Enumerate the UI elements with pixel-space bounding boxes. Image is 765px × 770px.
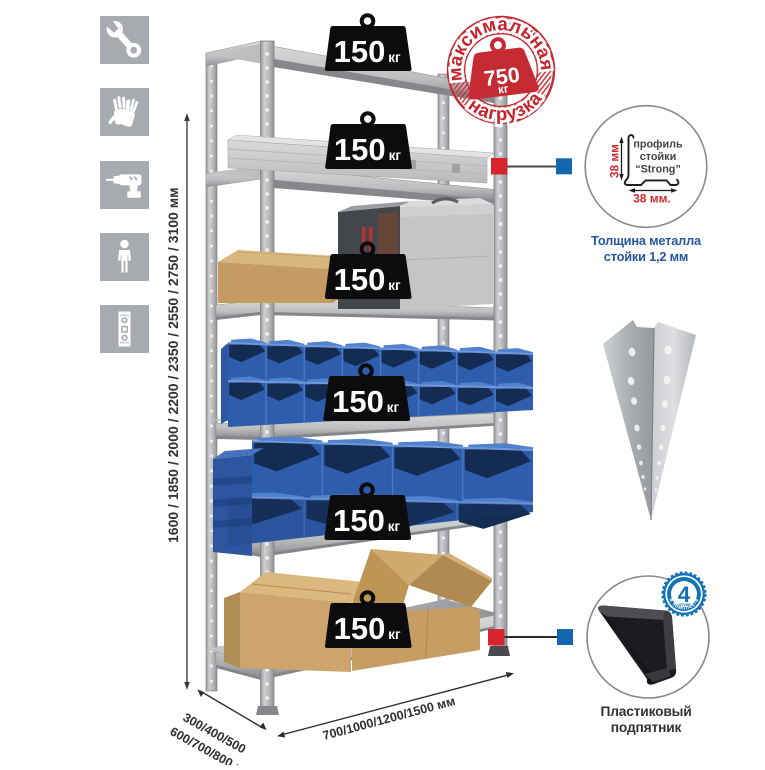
svg-text:1600 / 1850 / 2000 / 2200 / 23: 1600 / 1850 / 2000 / 2200 / 2350 / 2550 … xyxy=(165,188,181,543)
svg-text:кг: кг xyxy=(388,50,401,65)
svg-text:подпятник: подпятник xyxy=(611,720,682,735)
svg-text:150: 150 xyxy=(332,384,384,419)
svg-text:150: 150 xyxy=(334,262,386,297)
svg-text:профиль: профиль xyxy=(633,139,683,151)
svg-text:Толщина металла: Толщина металла xyxy=(591,233,702,248)
svg-text:стойки 1,2 мм: стойки 1,2 мм xyxy=(604,249,688,264)
svg-text:150: 150 xyxy=(334,611,386,646)
svg-text:Пластиковый: Пластиковый xyxy=(601,704,692,719)
svg-text:кг: кг xyxy=(387,400,400,415)
svg-text:кг: кг xyxy=(388,627,401,642)
svg-text:кг: кг xyxy=(389,148,402,163)
svg-text:150: 150 xyxy=(334,132,386,167)
svg-text:38 мм: 38 мм xyxy=(608,144,622,178)
svg-text:кг: кг xyxy=(388,278,401,293)
svg-text:38 мм.: 38 мм. xyxy=(633,192,671,206)
svg-text:150: 150 xyxy=(334,34,386,69)
svg-text:стойки: стойки xyxy=(640,151,676,163)
svg-text:150: 150 xyxy=(333,503,385,538)
svg-text:“Strong”: “Strong” xyxy=(635,164,681,176)
svg-text:кг: кг xyxy=(497,83,509,96)
svg-text:кг: кг xyxy=(388,519,401,534)
